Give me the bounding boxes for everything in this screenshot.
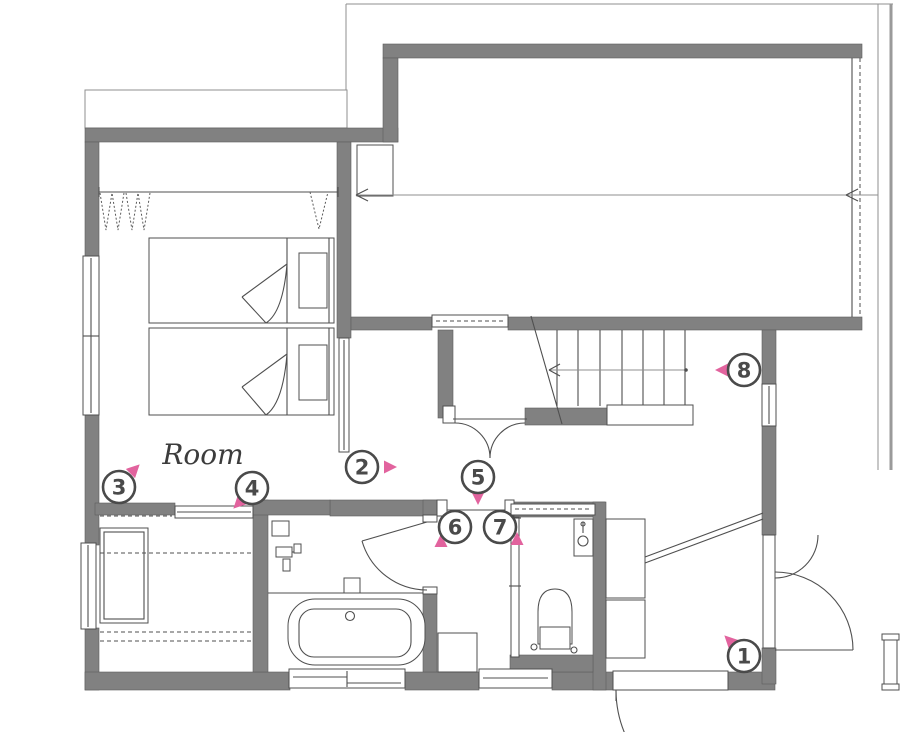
sliding-door-bedroom <box>175 506 253 518</box>
camera-marker-number: 7 <box>493 516 508 540</box>
drive-direction-arrow-icon <box>356 189 878 201</box>
bed-1 <box>149 238 334 323</box>
camera-marker-number: 8 <box>737 359 752 383</box>
vanity-sink <box>272 521 301 571</box>
hall-double-door <box>443 406 527 458</box>
closet-rod <box>99 187 338 230</box>
window-washroom-south <box>479 669 552 688</box>
hanger-icon <box>100 193 124 230</box>
genkan-step-edge <box>645 519 763 563</box>
window-hall-north <box>432 315 508 327</box>
window-bathroom-south <box>289 669 405 688</box>
toilet-sliding-door <box>511 504 595 515</box>
camera-marker-1[interactable]: 1 <box>720 631 760 672</box>
storage-shelf-upper <box>606 519 645 598</box>
floor-plan-canvas: Room <box>0 0 900 732</box>
pillow <box>299 253 327 308</box>
window-hall-east <box>762 384 776 426</box>
washing-machine <box>438 633 477 672</box>
genkan-step-edge <box>645 513 763 557</box>
hanger-icon <box>126 193 150 230</box>
garage <box>356 58 878 317</box>
toilet-room <box>509 504 645 658</box>
tub-controls <box>344 578 360 593</box>
bed-2 <box>149 328 334 415</box>
view-direction-triangle-icon <box>384 461 397 474</box>
camera-marker-8[interactable]: 8 <box>715 354 760 386</box>
camera-marker-number: 4 <box>245 477 260 501</box>
bathtub <box>288 599 425 665</box>
storage-shelf-lower <box>606 600 645 658</box>
view-direction-triangle-icon <box>715 364 728 377</box>
bed-3 <box>100 528 148 623</box>
hanger-icon <box>310 192 328 229</box>
camera-marker-number: 3 <box>112 476 127 500</box>
camera-marker-5[interactable]: 5 <box>462 461 494 505</box>
toilet-tank <box>540 627 570 649</box>
stair-landing <box>607 405 693 425</box>
camera-marker-2[interactable]: 2 <box>346 451 397 483</box>
camera-marker-number: 1 <box>737 645 752 669</box>
bathroom-door <box>362 515 437 594</box>
camera-marker-number: 5 <box>471 466 486 490</box>
corner-sink <box>574 519 593 556</box>
pillow <box>299 345 327 400</box>
camera-marker-number: 6 <box>448 516 463 540</box>
stair-direction-arrow-icon <box>549 364 688 376</box>
sliding-partition <box>339 338 349 452</box>
gate-post <box>882 634 899 690</box>
toilet <box>531 589 577 653</box>
garage-cabinet <box>357 145 393 196</box>
bedroom-main: Room <box>99 187 349 471</box>
window-left-lower <box>81 543 96 629</box>
window-left-upper <box>83 256 99 415</box>
bathroom <box>268 515 437 665</box>
room-label: Room <box>161 438 243 471</box>
south-exterior-door <box>613 671 728 732</box>
entry-door <box>763 535 853 650</box>
entrance <box>613 513 853 732</box>
floor-plan-page: Room <box>0 0 900 732</box>
bedroom-lower <box>100 506 253 641</box>
camera-marker-3[interactable]: 3 <box>103 460 144 503</box>
camera-marker-number: 2 <box>355 456 370 480</box>
